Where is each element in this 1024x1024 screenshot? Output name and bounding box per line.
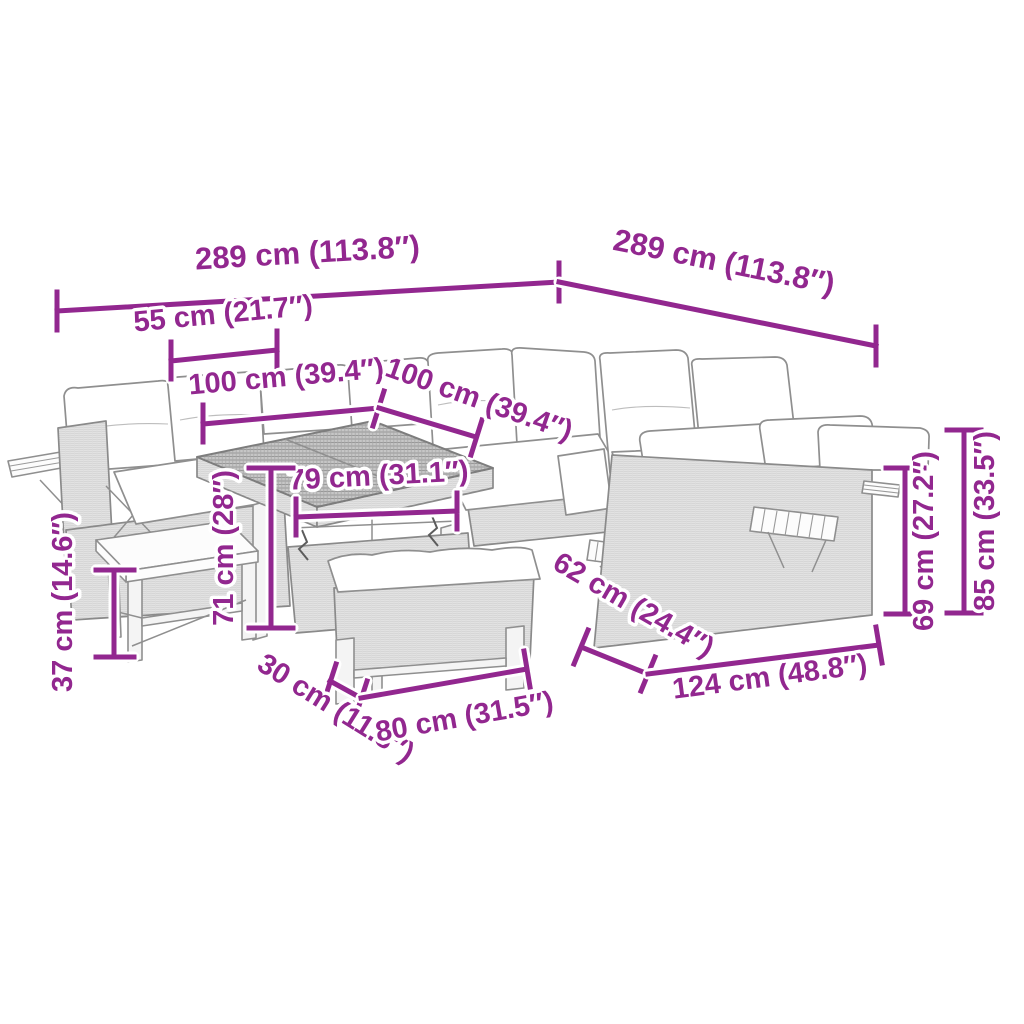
dim-label-seat-height: 69 cm (27.2″) bbox=[908, 451, 940, 631]
dim-overall-width-right: 289 cm (113.8″) bbox=[559, 222, 876, 365]
stool-leg bbox=[128, 576, 142, 662]
dim-label-stool-height: 37 cm (14.6″) bbox=[47, 512, 79, 692]
dim-back-height: 85 cm (33.5″) bbox=[947, 430, 1001, 613]
seat-cushion bbox=[558, 449, 612, 515]
dim-label-overall-left: 289 cm (113.8″) bbox=[194, 229, 421, 277]
dim-label-table-height: 71 cm (28″) bbox=[208, 470, 240, 626]
diagram-canvas: 289 cm (113.8″) 289 cm (113.8″) 55 cm (2… bbox=[0, 0, 1024, 1024]
dim-seat-height: 69 cm (27.2″) bbox=[886, 451, 940, 631]
dim-label-overall-right: 289 cm (113.8″) bbox=[610, 222, 838, 301]
dim-label-back-height: 85 cm (33.5″) bbox=[969, 431, 1001, 611]
dimension-diagram: 289 cm (113.8″) 289 cm (113.8″) 55 cm (2… bbox=[0, 0, 1024, 1024]
